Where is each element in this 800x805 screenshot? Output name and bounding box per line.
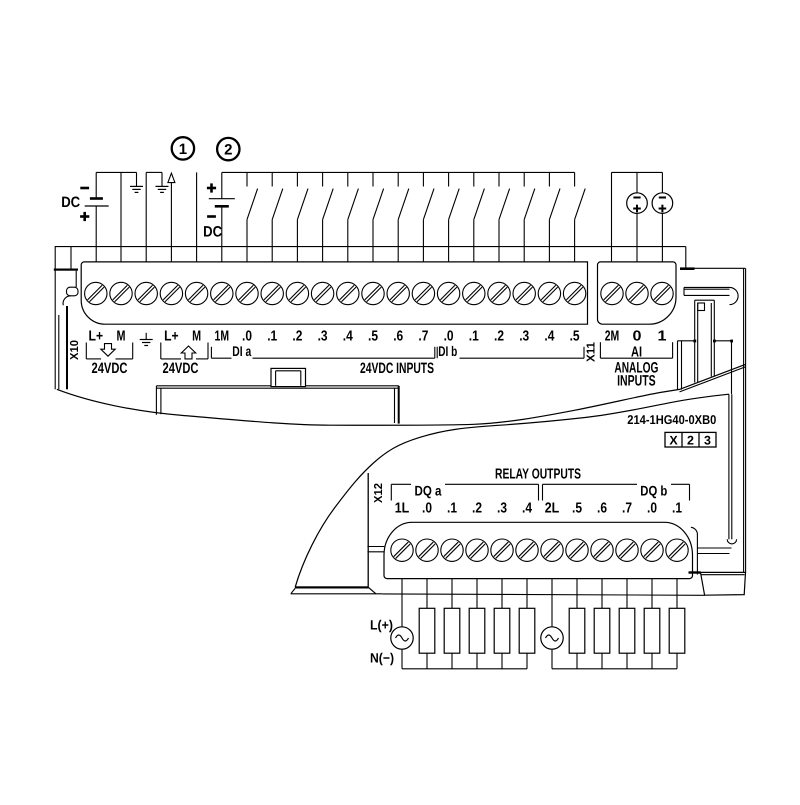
- svg-text:.3: .3: [497, 501, 507, 517]
- svg-text:.6: .6: [393, 329, 403, 345]
- svg-text:DQ a: DQ a: [415, 482, 442, 498]
- svg-text:0: 0: [633, 329, 642, 345]
- svg-text:.5: .5: [368, 329, 378, 345]
- svg-text:.4: .4: [544, 329, 554, 345]
- svg-text:.2: .2: [494, 329, 504, 345]
- svg-text:24VDC: 24VDC: [163, 360, 199, 377]
- svg-text:DI a: DI a: [232, 343, 251, 359]
- svg-text:DQ b: DQ b: [640, 482, 667, 498]
- svg-text:N(−): N(−): [370, 651, 394, 666]
- svg-text:DI b: DI b: [438, 343, 457, 359]
- svg-text:.3: .3: [318, 329, 328, 345]
- svg-text:.4: .4: [522, 501, 532, 517]
- svg-text:DC: DC: [203, 224, 222, 241]
- svg-text:214-1HG40-0XB0: 214-1HG40-0XB0: [627, 412, 716, 427]
- svg-text:24VDC INPUTS: 24VDC INPUTS: [360, 360, 434, 377]
- svg-text:1: 1: [658, 329, 667, 345]
- svg-text:1: 1: [179, 141, 187, 158]
- svg-text:INPUTS: INPUTS: [617, 372, 656, 389]
- svg-text:.1: .1: [267, 329, 277, 345]
- svg-text:.7: .7: [418, 329, 428, 345]
- svg-text:.2: .2: [292, 329, 302, 345]
- svg-text:L+: L+: [164, 329, 179, 345]
- svg-text:.1: .1: [469, 329, 479, 345]
- svg-text:2: 2: [687, 433, 694, 447]
- svg-text:M: M: [192, 329, 201, 345]
- svg-text:2L: 2L: [545, 501, 560, 517]
- svg-text:X10: X10: [69, 340, 81, 360]
- svg-text:RELAY OUTPUTS: RELAY OUTPUTS: [495, 466, 581, 482]
- svg-text:.7: .7: [622, 501, 632, 517]
- svg-text:.5: .5: [572, 501, 582, 517]
- svg-text:.3: .3: [519, 329, 529, 345]
- svg-text:X11: X11: [586, 341, 598, 362]
- svg-text:L(+): L(+): [370, 618, 393, 633]
- svg-text:.0: .0: [647, 501, 657, 517]
- svg-text:1M: 1M: [215, 329, 230, 345]
- svg-text:24VDC: 24VDC: [92, 360, 128, 377]
- svg-text:1L: 1L: [395, 501, 410, 517]
- svg-text:.1: .1: [447, 501, 457, 517]
- svg-text:2: 2: [224, 142, 232, 159]
- svg-text:M: M: [117, 329, 126, 345]
- svg-text:X12: X12: [373, 483, 385, 503]
- svg-text:L+: L+: [89, 329, 104, 345]
- svg-text:.6: .6: [597, 501, 607, 517]
- svg-text:AI: AI: [631, 345, 642, 361]
- svg-text:2M: 2M: [605, 329, 620, 345]
- svg-text:3: 3: [704, 433, 711, 447]
- svg-text:.1: .1: [672, 501, 682, 517]
- svg-text:.5: .5: [570, 329, 580, 345]
- svg-text:DC: DC: [61, 194, 80, 211]
- svg-text:X: X: [669, 433, 678, 447]
- svg-text:.4: .4: [343, 329, 353, 345]
- svg-text:.0: .0: [422, 501, 432, 517]
- svg-text:.2: .2: [472, 501, 482, 517]
